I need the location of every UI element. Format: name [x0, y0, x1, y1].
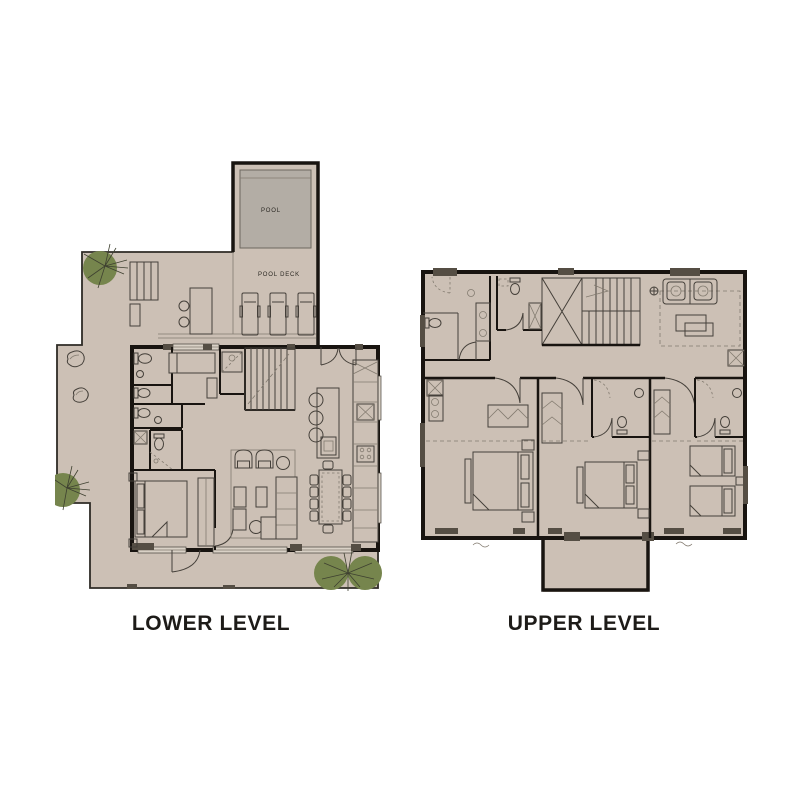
- bed-twin: [690, 446, 735, 476]
- kitchen-counter: [353, 360, 378, 542]
- master-bed: [135, 481, 187, 537]
- pool-deck-label: POOL DECK: [258, 272, 300, 278]
- upper-level-plan: [418, 263, 753, 598]
- bed-double: [465, 440, 534, 522]
- light-fixture-icon: [650, 287, 658, 295]
- lower-level-caption: LOWER LEVEL: [132, 612, 290, 636]
- upper-level-caption: UPPER LEVEL: [508, 612, 660, 636]
- pool-label: POOL: [261, 208, 281, 214]
- balcony: [543, 538, 648, 592]
- lower-level-plan: POOL POOL DECK: [55, 148, 395, 596]
- bed-twin: [690, 486, 735, 516]
- floorplan-canvas: POOL POOL DECK: [0, 0, 800, 800]
